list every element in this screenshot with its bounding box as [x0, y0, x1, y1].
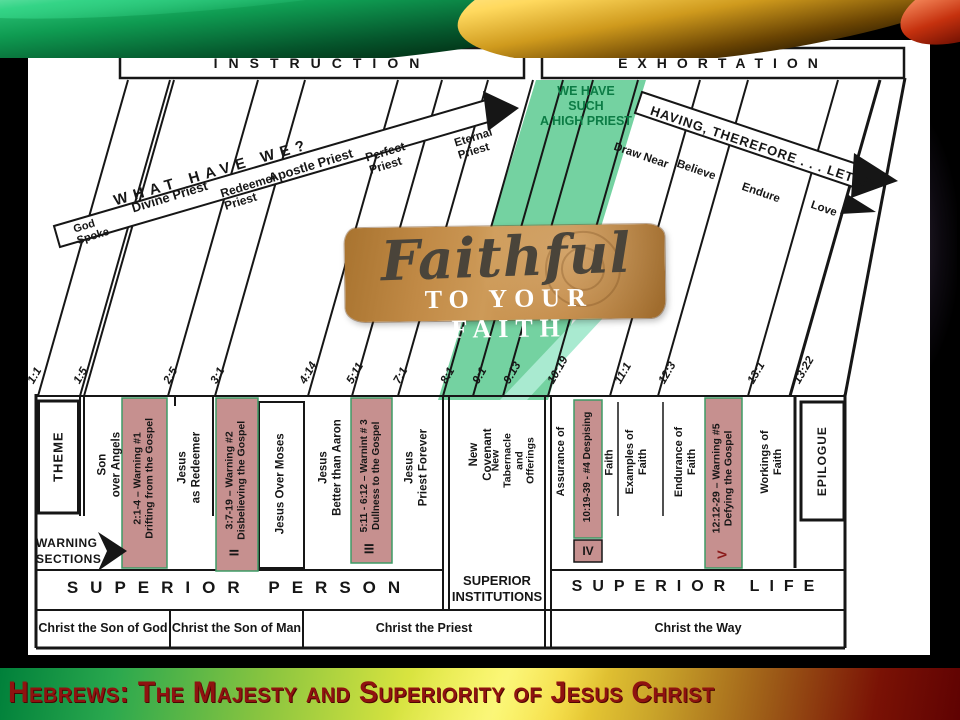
instruction-header: INSTRUCTION [120, 55, 524, 71]
gold-swoosh [448, 0, 960, 58]
warning-3-numeral: III [361, 537, 376, 561]
col-new-tabernacle: New Tabernacle and Offerings [491, 400, 538, 522]
slide-stage: INSTRUCTION EXHORTATION WHAT HAVE WE? HA… [0, 0, 960, 720]
warning-1-label: 2:1-4 – Warning #1 Drifting from the Gos… [132, 397, 157, 559]
section-superior-life: SUPERIOR LIFE [551, 578, 845, 596]
col-son-over-angels: Son over Angels [96, 400, 123, 530]
col-jesus-better-than-aaron: Jesus Better than Aaron [317, 398, 344, 538]
col-endurance-of-faith: Endurance of Faith [673, 406, 699, 518]
exhortation-header: EXHORTATION [542, 55, 904, 71]
col-theme: THEME [50, 411, 65, 503]
we-have-such-a-high-priest-label: WE HAVE SUCH A HIGH PRIEST [522, 84, 650, 129]
warning-5-numeral: V [714, 545, 729, 565]
col-workings-of-faith: Workings of Faith [759, 406, 785, 518]
col-jesus-as-redeemer: Jesus as Redeemer [176, 403, 203, 533]
warning-2-label: 3:7-19 – Warning #2 Disbelieving the Gos… [224, 397, 249, 563]
warning-2-numeral: II [226, 543, 241, 563]
top-swoosh-band [0, 0, 960, 58]
bottom-christ-son-of-god: Christ the Son of God [36, 621, 170, 635]
col-examples-of-faith: Examples of Faith [624, 406, 650, 518]
col-jesus-over-moses: Jesus Over Moses [275, 406, 289, 561]
col-epilogue: EPILOGUE [815, 408, 829, 514]
bottom-christ-the-priest: Christ the Priest [303, 621, 545, 635]
col-assurance-of: Assurance of [555, 404, 568, 519]
section-superior-institutions: SUPERIOR INSTITUTIONS [449, 573, 545, 606]
footer-title-bar: Hebrews: The Majesty and Superiority of … [0, 668, 960, 720]
warning-5-label: 12:12-29 – Warning #5 Defying the Gospel [711, 397, 736, 559]
col-assurance-faith: Faith [604, 432, 617, 492]
warning-sections-label: WARNING SECTIONS [36, 536, 101, 567]
warning-4-label: 10:19-39 - #4 Despising [582, 401, 594, 533]
section-superior-person: SUPERIOR PERSON [36, 578, 443, 598]
bottom-christ-the-way: Christ the Way [551, 621, 845, 635]
logo-caption-text: TO YOUR FAITH [368, 282, 651, 346]
warning-4-numeral: IV [576, 544, 600, 558]
footer-title: Hebrews: The Majesty and Superiority of … [8, 675, 901, 711]
bottom-christ-son-of-man: Christ the Son of Man [170, 621, 303, 635]
warning-3-label: 5:11 - 6:12 – Warnint # 3 Dullness to th… [359, 397, 383, 555]
col-jesus-priest-forever: Jesus Priest Forever [403, 403, 430, 533]
